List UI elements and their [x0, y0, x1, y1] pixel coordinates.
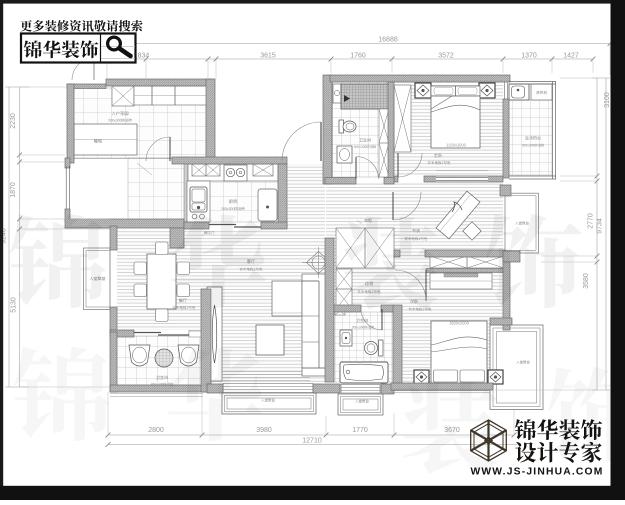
- svg-text:1760: 1760: [350, 53, 366, 60]
- svg-text:16888: 16888: [378, 37, 398, 44]
- svg-text:2800: 2800: [148, 427, 164, 434]
- svg-text:1770: 1770: [352, 427, 368, 434]
- svg-text:3980: 3980: [256, 427, 272, 434]
- svg-text:9734: 9734: [597, 218, 604, 234]
- svg-text:5130: 5130: [11, 297, 18, 313]
- svg-text:2230: 2230: [10, 113, 17, 129]
- svg-text:3572: 3572: [438, 53, 454, 60]
- svg-text:12710: 12710: [302, 438, 322, 445]
- svg-text:2770: 2770: [588, 213, 595, 229]
- svg-text:3670: 3670: [444, 427, 460, 434]
- svg-text:3615: 3615: [260, 53, 276, 60]
- svg-text:1870: 1870: [10, 182, 17, 198]
- svg-text:1427: 1427: [563, 53, 579, 60]
- svg-text:3580: 3580: [583, 273, 590, 289]
- svg-text:3100: 3100: [604, 92, 611, 108]
- svg-text:1370: 1370: [521, 53, 537, 60]
- svg-text:WWW.JS-JINHUA.COM: WWW.JS-JINHUA.COM: [470, 467, 603, 478]
